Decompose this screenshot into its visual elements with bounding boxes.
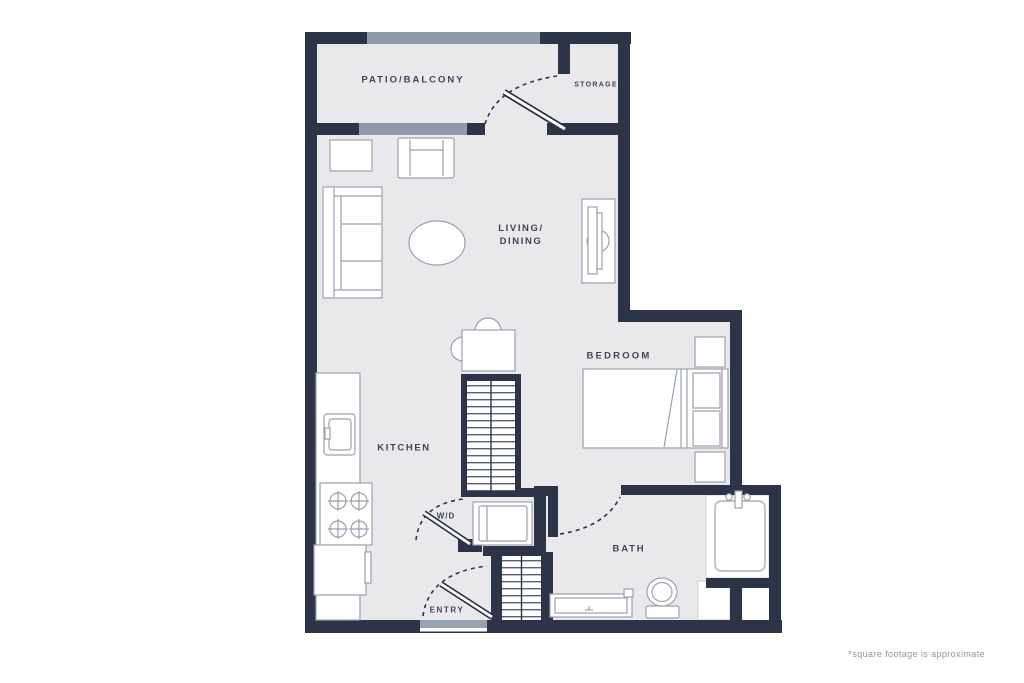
sliding-door-icon [359, 123, 467, 135]
sofa-icon [323, 187, 382, 298]
fridge-icon [314, 545, 371, 595]
room-label-living-line1: LIVING/ [498, 222, 544, 235]
stairs-upper-icon [461, 374, 521, 497]
room-label-kitchen: KITCHEN [377, 442, 430, 455]
room-label-entry: ENTRY [430, 604, 465, 617]
floorplan-page: PATIO/BALCONY STORAGE LIVING/ DINING BED… [0, 0, 1024, 683]
armchair-icon [398, 138, 454, 178]
square-footage-footnote: *square footage is approximate [848, 649, 985, 659]
bathtub-icon [715, 491, 765, 571]
nightstand-icon [695, 337, 725, 367]
room-label-bedroom: BEDROOM [586, 350, 651, 363]
room-label-washer-dryer: W/D [437, 510, 456, 523]
nightstand-icon [695, 452, 725, 482]
tv-console-icon [582, 199, 615, 283]
balcony-railing-icon [367, 32, 540, 44]
bed-icon [583, 369, 728, 448]
washer-dryer-icon [473, 502, 532, 545]
side-table-icon [330, 140, 372, 171]
room-label-living-line2: DINING [498, 235, 544, 248]
stairs-lower-icon [502, 556, 541, 620]
room-label-storage: STORAGE [574, 79, 618, 92]
room-label-patio-balcony: PATIO/BALCONY [361, 74, 464, 87]
room-label-living-dining: LIVING/ DINING [498, 222, 544, 248]
stove-icon [320, 483, 372, 545]
room-label-bath: BATH [613, 543, 646, 556]
entry-threshold-icon [420, 620, 487, 632]
coffee-table-icon [409, 221, 465, 265]
toilet-icon [646, 578, 679, 618]
floorplan-drawing [0, 0, 1024, 683]
sink-icon [324, 414, 355, 455]
